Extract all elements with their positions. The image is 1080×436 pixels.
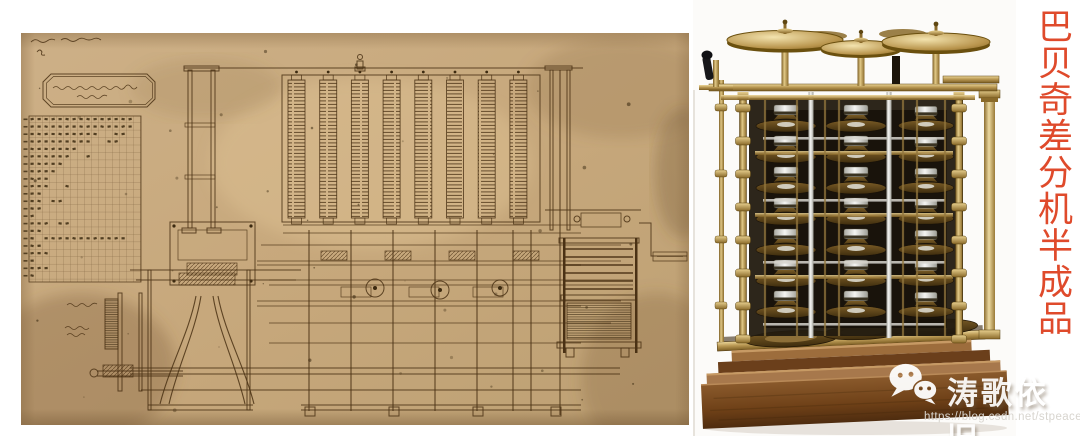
blueprint-drawing [21, 33, 689, 425]
watermark: 涛歌依旧 [888, 362, 1080, 436]
photo-left-edge [693, 90, 695, 436]
calculation-table [24, 116, 142, 282]
wechat-icon [888, 362, 941, 406]
caption-vertical: 巴贝奇差分机半成品 [1022, 8, 1078, 354]
watermark-url: https://blog.csdn.net/stpeace [924, 411, 1080, 423]
watermark-name: 涛歌依旧 [947, 368, 1080, 436]
blueprint-figure [21, 33, 689, 425]
screenshot-root: 巴贝奇差分机半成品 涛歌依旧 https://blog.csdn.net/stp… [0, 0, 1080, 436]
